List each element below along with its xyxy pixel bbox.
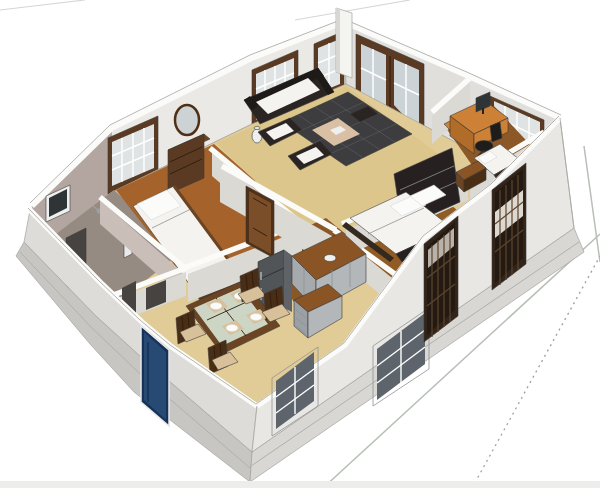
image-bottom-border: [0, 481, 600, 488]
corner-pillar: [336, 8, 352, 78]
floorplan-render-canvas: 3D cutaway floor plan model of a single-…: [0, 0, 600, 488]
horizon-line-left: [0, 0, 85, 10]
counter-sink: [324, 255, 336, 262]
horizon-line-mid: [295, 0, 410, 20]
floorplan-3d-model: [0, 0, 600, 488]
ground-edge-line-right: [584, 146, 600, 262]
